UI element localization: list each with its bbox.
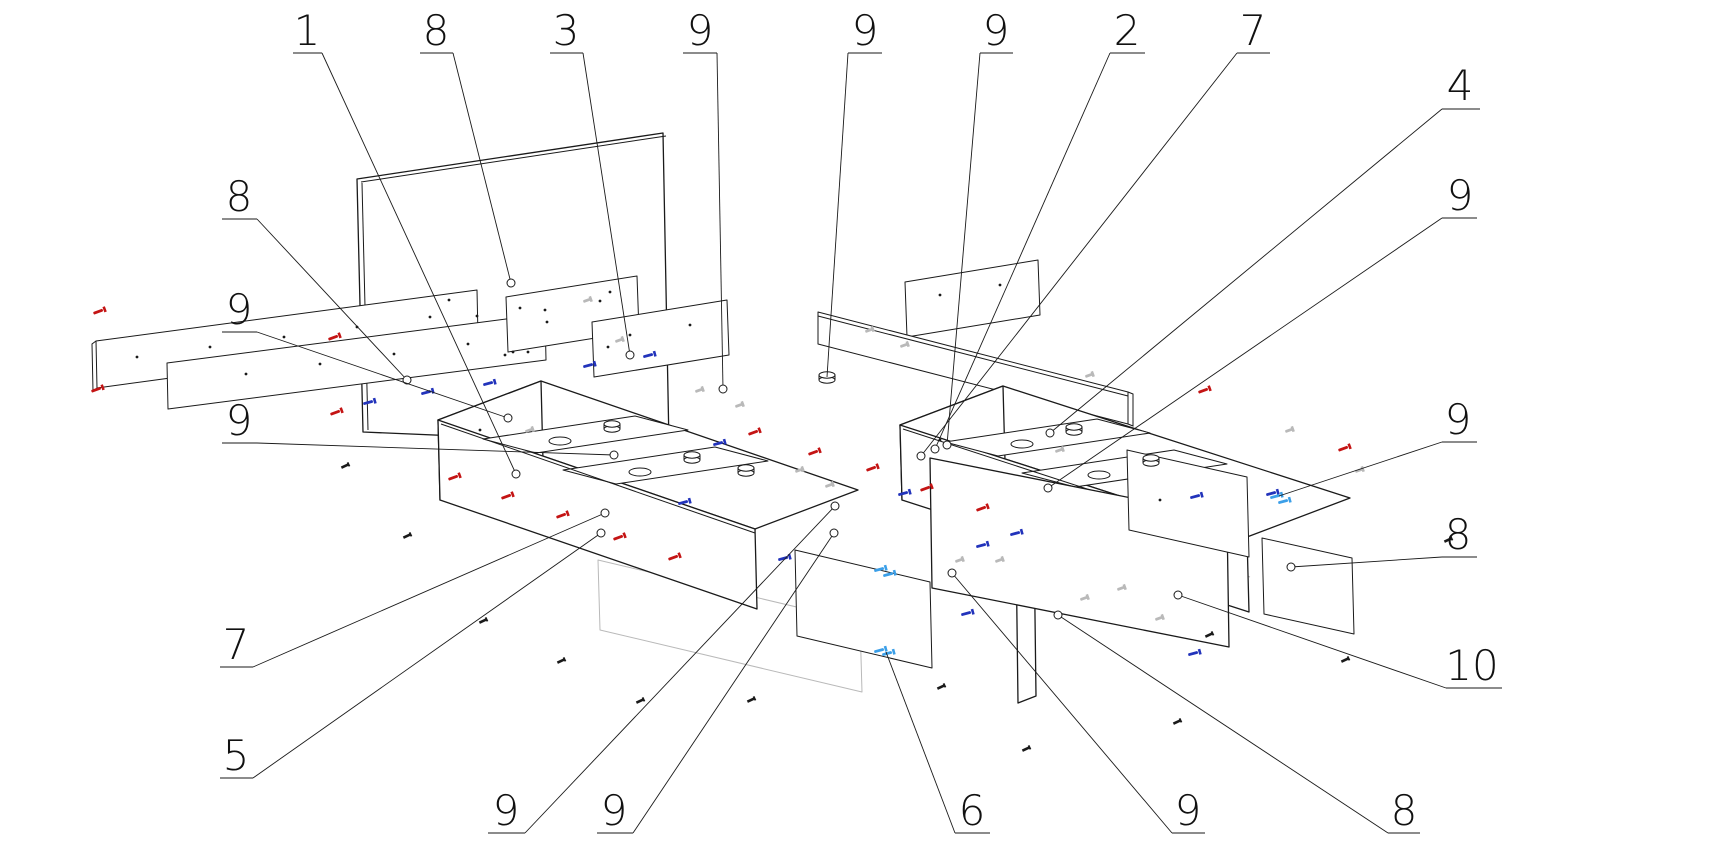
leader-endpoint [917, 452, 925, 460]
debris-pin [1021, 745, 1031, 753]
drill-hole [319, 363, 322, 366]
leader-endpoint [597, 529, 605, 537]
drill-hole [448, 299, 451, 302]
furniture-wireframe [92, 133, 1354, 703]
debris-pin [635, 697, 645, 705]
leader-endpoint [1044, 484, 1052, 492]
leader-endpoint [1287, 563, 1295, 571]
callout-number: 9 [1175, 786, 1202, 835]
screw-head [817, 447, 821, 453]
panel-bracket-right [1262, 538, 1354, 634]
screw-icon [961, 609, 975, 618]
callout-number: 10 [1445, 641, 1498, 690]
panel-center-bottom [795, 550, 932, 668]
leader-endpoint [512, 470, 520, 478]
cylinder-top [1066, 424, 1082, 430]
callout-number: 4 [1447, 61, 1474, 110]
drill-hole [519, 307, 522, 310]
leader-line [1058, 615, 1388, 833]
leader-endpoint [610, 451, 618, 459]
screw-body [1188, 651, 1198, 656]
screw-icon [92, 306, 106, 316]
cam-cylinder [1066, 424, 1082, 435]
drawing-sheet: 183999274998108997599698 [0, 0, 1715, 842]
screw-head [1198, 649, 1202, 655]
screw-head [102, 306, 106, 312]
cylinder-top [1143, 455, 1159, 461]
drill-hole [504, 354, 507, 357]
callout-4-8: 4 [1046, 61, 1480, 437]
leader-endpoint [719, 385, 727, 393]
handle-slot [629, 468, 651, 476]
screw-icon [1197, 385, 1211, 395]
leader-endpoint [931, 445, 939, 453]
handle-slot [549, 437, 571, 445]
drill-hole [689, 324, 692, 327]
drill-hole [939, 294, 942, 297]
cam-cylinder [604, 421, 620, 432]
screw-head [875, 463, 879, 469]
leader-endpoint [1054, 611, 1062, 619]
callout-9-10: 9 [1279, 395, 1477, 496]
dowel-icon [734, 401, 745, 409]
leader-line [947, 53, 980, 445]
screw-icon [807, 447, 821, 457]
screw-body [961, 611, 971, 616]
callout-number: 2 [1114, 6, 1141, 55]
screw-head [339, 407, 343, 413]
leader-endpoint [626, 351, 634, 359]
screw-head [884, 565, 888, 571]
callout-number: 8 [226, 172, 253, 221]
exploded-assembly-diagram: 183999274998108997599698 [0, 0, 1715, 842]
leader-line [253, 513, 605, 667]
leader-endpoint [1174, 591, 1182, 599]
drill-hole [283, 336, 286, 339]
screw-icon [865, 463, 879, 473]
callout-number: 6 [959, 786, 986, 835]
drill-hole [476, 315, 479, 318]
screw-head [757, 427, 761, 433]
callout-number: 9 [687, 6, 714, 55]
screw-head [1207, 385, 1211, 391]
callout-number: 7 [223, 620, 250, 669]
callout-6-20: 6 [886, 652, 990, 835]
debris-pin [402, 532, 412, 540]
drill-hole [607, 346, 610, 349]
callout-number: 7 [1240, 6, 1267, 55]
leader-line [1050, 109, 1442, 433]
screw-body [1338, 446, 1348, 452]
callout-number: 9 [226, 396, 253, 445]
dowel-icon [694, 386, 705, 394]
leader-endpoint [831, 502, 839, 510]
cylinder-top [604, 421, 620, 427]
callout-number: 8 [423, 6, 450, 55]
drill-hole [136, 356, 139, 359]
leader-endpoint [507, 279, 515, 287]
drill-hole [209, 346, 212, 349]
handle-slot [1088, 471, 1110, 479]
drill-hole [544, 309, 547, 312]
leader-line [1048, 218, 1442, 488]
screw-icon [1188, 649, 1202, 658]
dowel-icon [1084, 371, 1095, 379]
screw-body [866, 466, 876, 472]
cam-cylinder [684, 452, 700, 463]
leader-endpoint [601, 509, 609, 517]
leader-endpoint [948, 569, 956, 577]
screw-head [971, 609, 975, 615]
panel-strip-right-top [905, 260, 1040, 337]
drill-hole [609, 291, 612, 294]
screw-icon [778, 554, 792, 563]
debris-pin [1172, 718, 1182, 726]
drill-hole [512, 351, 515, 354]
leader-endpoint [504, 414, 512, 422]
callout-number: 9 [493, 786, 520, 835]
drill-hole [999, 284, 1002, 287]
drill-hole [1159, 499, 1162, 502]
screw-icon [1337, 443, 1351, 453]
callout-number: 5 [223, 731, 250, 780]
callout-number: 1 [294, 6, 321, 55]
drill-hole [527, 351, 530, 354]
cylinder-top [738, 465, 754, 471]
drill-hole [245, 373, 248, 376]
leader-line [886, 652, 955, 833]
callout-number: 9 [1447, 171, 1474, 220]
cam-cylinder [1143, 455, 1159, 466]
callout-number: 9 [852, 6, 879, 55]
debris-pin [746, 696, 756, 704]
leader-endpoint [830, 529, 838, 537]
drill-hole [467, 343, 470, 346]
screw-body [330, 410, 340, 416]
drill-hole [393, 353, 396, 356]
screw-icon [329, 407, 343, 417]
screw-head [1347, 443, 1351, 449]
drill-hole [599, 300, 602, 303]
callout-number: 8 [1391, 786, 1418, 835]
debris-pin [556, 657, 566, 665]
drill-hole [546, 321, 549, 324]
callout-8-22: 8 [1054, 611, 1420, 835]
debris-pin [936, 683, 946, 691]
callout-number: 8 [1445, 510, 1472, 559]
screw-body [808, 450, 818, 456]
leader-line [1279, 442, 1442, 496]
debris-pin [340, 462, 350, 470]
drill-hole [629, 334, 632, 337]
screw-icon [747, 427, 761, 437]
screw-body [93, 309, 103, 315]
callout-number: 9 [226, 285, 253, 334]
drill-hole [429, 316, 432, 319]
leader-endpoint [943, 441, 951, 449]
leader-endpoint [1046, 429, 1054, 437]
debris-pin [1340, 656, 1350, 664]
handle-slot [1011, 440, 1033, 448]
leader-line [253, 533, 601, 778]
callout-number: 3 [553, 6, 580, 55]
callout-5-17: 5 [220, 529, 605, 780]
callout-number: 9 [601, 786, 628, 835]
cylinder-top [684, 452, 700, 458]
cam-cylinder [738, 465, 754, 476]
screw-body [1198, 388, 1208, 394]
callout-number: 9 [1445, 395, 1472, 444]
dowel-icon [1284, 426, 1295, 434]
callout-number: 9 [983, 6, 1010, 55]
drill-hole [479, 429, 482, 432]
screw-body [748, 430, 758, 436]
